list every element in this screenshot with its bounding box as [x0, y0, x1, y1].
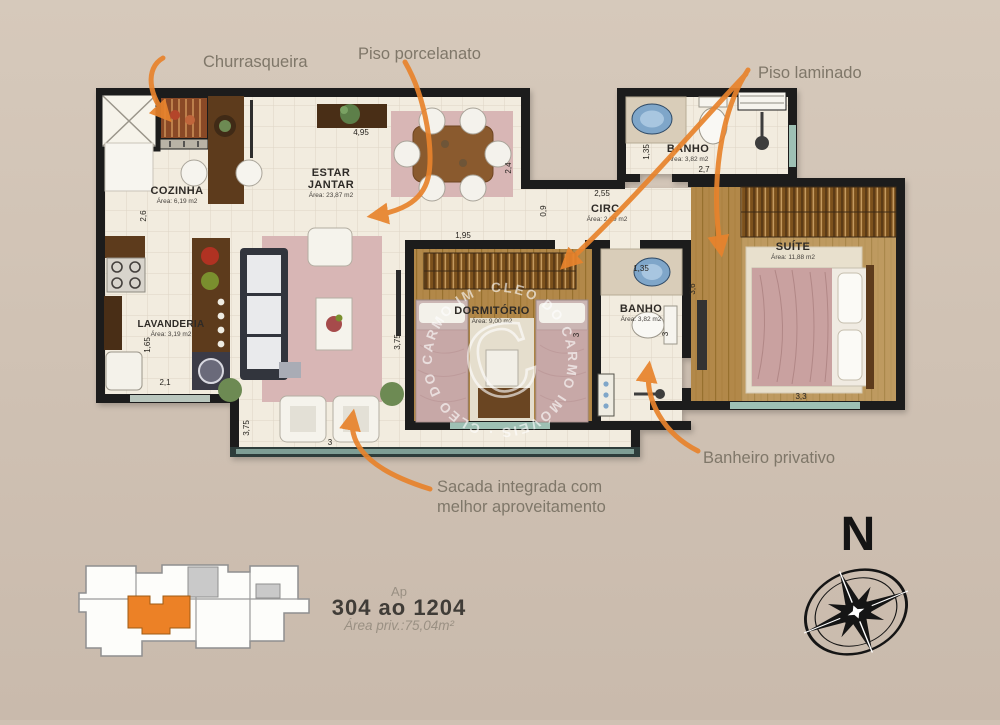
dim-label: 3,75: [242, 420, 251, 436]
armchair: [308, 228, 352, 266]
tv-panel: [396, 270, 401, 336]
room-label-suite: SUÍTE Área: 11,88 m2: [771, 240, 815, 261]
bath1-window: [789, 125, 796, 167]
unit-info-private-area: Área priv.:75,04m²: [343, 618, 455, 633]
room-label-estar-jantar: ESTAR JANTAR Área: 23,87 m2: [308, 167, 354, 199]
shower-head: [755, 136, 769, 150]
stool: [181, 160, 207, 186]
annotation-banheiro-privativo: Banheiro privativo: [703, 449, 835, 467]
svg-text:Área: 3,82 m2: Área: 3,82 m2: [621, 314, 662, 323]
annotation-piso-porcelanato: Piso porcelanato: [358, 45, 481, 63]
dim-label: 3,75: [393, 334, 402, 350]
room-label-banho-suite: BANHO Área: 3,82 m2: [620, 303, 662, 323]
svg-text:JANTAR: JANTAR: [308, 179, 354, 191]
annotation-sacada-line1: Sacada integrada com: [437, 478, 602, 496]
kitchen-island: [208, 96, 244, 204]
keyplan-core: [188, 567, 218, 597]
stove: [107, 258, 145, 292]
dim-label: 2,55: [594, 189, 610, 198]
bath-niche: [738, 92, 786, 110]
dim-label: 1,65: [143, 337, 152, 353]
annotation-piso-laminado: Piso laminado: [758, 64, 862, 82]
dining-table: [413, 126, 493, 182]
laundry-tank: [106, 352, 142, 390]
svg-text:ESTAR: ESTAR: [312, 167, 350, 179]
svg-text:LAVANDERIA: LAVANDERIA: [137, 319, 204, 330]
annotation-churrasqueira: Churrasqueira: [203, 53, 308, 71]
dim-label: 3,6: [688, 283, 697, 295]
svg-text:COZINHA: COZINHA: [151, 185, 204, 197]
keyplan-core2: [256, 584, 280, 598]
floor-plan-canvas: COZINHA Área: 6,19 m2 ESTAR JANTAR Área:…: [0, 0, 1000, 720]
dim-label: 2,4: [504, 162, 513, 174]
room-label-cozinha: COZINHA Área: 6,19 m2: [151, 185, 204, 205]
svg-text:SUÍTE: SUÍTE: [776, 240, 810, 253]
entry-door-leaf: [250, 100, 253, 158]
dim-label: 1,95: [455, 231, 471, 240]
dim-label: 3: [328, 438, 333, 447]
annotation-sacada-line2: melhor aproveitamento: [437, 498, 606, 516]
kitchen-cabinet: [105, 236, 145, 258]
dim-label: 3: [661, 331, 670, 336]
svg-text:BANHO: BANHO: [620, 303, 662, 315]
dim-label: 0,9: [539, 205, 548, 217]
suite-dresser: [697, 300, 707, 370]
floor-plan-page: COZINHA Área: 6,19 m2 ESTAR JANTAR Área:…: [0, 0, 1000, 720]
laundry-window: [130, 395, 210, 402]
elevator-shaft: [100, 93, 158, 149]
pantry: [104, 296, 122, 350]
svg-text:Área: 11,88 m2: Área: 11,88 m2: [771, 252, 815, 261]
compass-north-label: N: [841, 508, 876, 561]
dim-label: 4,95: [353, 128, 369, 137]
svg-text:Área: 6,19 m2: Área: 6,19 m2: [157, 196, 198, 205]
dim-label: 1,35: [633, 264, 649, 273]
svg-text:Área: 3,19 m2: Área: 3,19 m2: [151, 329, 192, 338]
plant: [218, 378, 242, 402]
toilet-tank: [664, 306, 677, 344]
dim-label: 2,1: [159, 378, 171, 387]
plant: [380, 382, 404, 406]
dim-label: 2,6: [139, 210, 148, 222]
unit-info-units: 304 ao 1204: [332, 595, 467, 620]
stool: [236, 160, 262, 186]
churrasqueira-grill: [160, 97, 208, 149]
kitchen-counter: [105, 143, 153, 191]
suite-window: [730, 402, 860, 409]
dim-label: 2,7: [698, 165, 710, 174]
svg-text:Área: 23,87 m2: Área: 23,87 m2: [309, 190, 354, 199]
dim-label: 3,3: [795, 392, 807, 401]
dim-label: 1,35: [642, 144, 651, 160]
suite-bed: [752, 265, 874, 389]
